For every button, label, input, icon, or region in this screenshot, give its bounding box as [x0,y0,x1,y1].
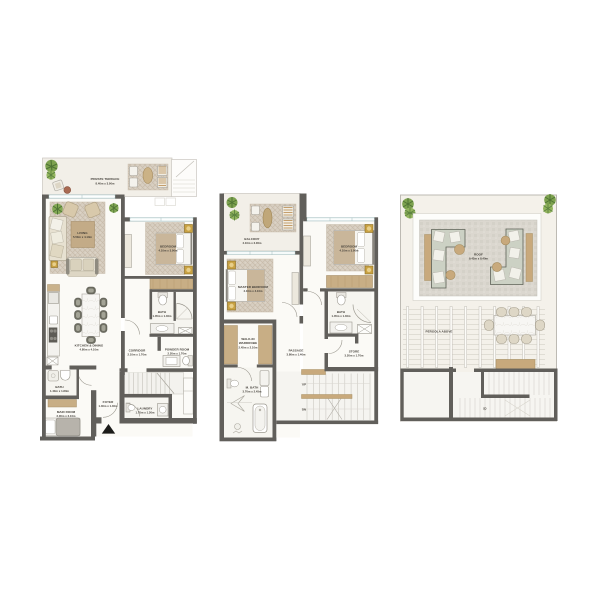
svg-text:1.40m x 1.80m: 1.40m x 1.80m [50,389,70,393]
svg-text:2.45m x 2.10m: 2.45m x 2.10m [238,345,258,349]
svg-text:2.00m x 2.10m: 2.00m x 2.10m [56,414,76,418]
svg-text:PERGOLA ABOVE: PERGOLA ABOVE [426,330,453,334]
svg-text:BEDROOM: BEDROOM [160,245,177,249]
svg-text:LIVING: LIVING [77,231,88,235]
svg-text:DN: DN [302,408,306,412]
svg-text:4.10m x 4.10m: 4.10m x 4.10m [243,289,263,293]
svg-text:PASSAGE: PASSAGE [289,349,304,353]
svg-text:STORE: STORE [349,350,360,354]
svg-text:1.70m x 1.30m: 1.70m x 1.30m [135,411,155,415]
svg-text:3.70m x 2.45m: 3.70m x 2.45m [242,390,262,394]
svg-text:4.10m x 2.00m: 4.10m x 2.00m [242,241,262,245]
svg-text:MASTER BEDROOM: MASTER BEDROOM [238,285,268,289]
svg-text:1.40m x 1.40m: 1.40m x 1.40m [98,404,118,408]
svg-text:BATH: BATH [158,310,166,314]
svg-text:2.10m x 1.70m: 2.10m x 1.70m [127,353,147,357]
svg-text:ROOF: ROOF [474,253,483,257]
svg-text:1.45m x 1.40m: 1.45m x 1.40m [152,314,172,318]
svg-text:4.10m x 3.00m: 4.10m x 3.00m [158,249,178,253]
svg-text:POWDER ROOM: POWDER ROOM [165,348,190,352]
svg-text:BEDROOM: BEDROOM [341,245,358,249]
svg-text:4.80m x 4.10m: 4.80m x 4.10m [79,348,99,352]
svg-text:CORRIDOR: CORRIDOR [129,349,147,353]
svg-text:8.40m x 3.00m: 8.40m x 3.00m [95,181,115,185]
svg-text:9.42m x 8.40m: 9.42m x 8.40m [469,257,489,261]
svg-text:WARDROBE: WARDROBE [239,341,257,345]
svg-text:BATH: BATH [337,310,345,314]
svg-text:4.10m x 3.00m: 4.10m x 3.00m [339,249,359,253]
svg-text:M. BATH: M. BATH [246,386,259,390]
svg-text:☉: ☉ [483,406,487,411]
svg-text:PRIVATE TERRACE: PRIVATE TERRACE [91,177,120,181]
svg-text:2.20m x 1.70m: 2.20m x 1.70m [167,352,187,356]
svg-text:3.20m x 1.70m: 3.20m x 1.70m [344,354,364,358]
svg-text:MAID ROOM: MAID ROOM [57,410,76,414]
svg-text:UP: UP [302,383,306,387]
svg-text:1.45m x 1.40m: 1.45m x 1.40m [331,314,351,318]
svg-text:FOYER: FOYER [103,400,114,404]
svg-text:5.50m x 4.10m: 5.50m x 4.10m [73,235,93,239]
svg-text:LAUNDRY: LAUNDRY [138,407,153,411]
svg-text:3.86m x 1.40m: 3.86m x 1.40m [286,353,306,357]
svg-text:BALCONY: BALCONY [244,237,259,241]
svg-text:KITCHEN & DINING: KITCHEN & DINING [75,344,104,348]
svg-text:BATH: BATH [55,385,63,389]
